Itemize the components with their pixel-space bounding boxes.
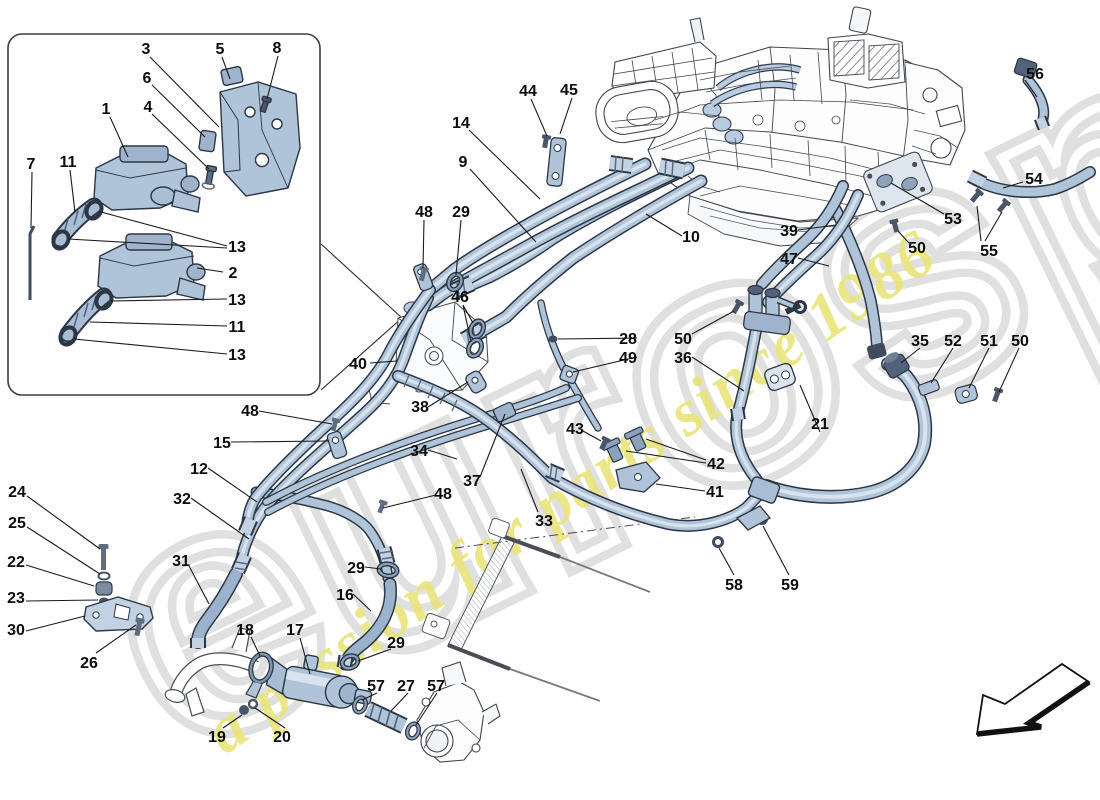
- svg-text:5: 5: [216, 41, 225, 58]
- svg-text:29: 29: [452, 204, 470, 221]
- svg-text:40: 40: [349, 356, 367, 373]
- svg-text:57: 57: [367, 678, 385, 695]
- svg-text:44: 44: [519, 83, 537, 100]
- svg-text:26: 26: [80, 655, 98, 672]
- svg-text:29: 29: [387, 635, 405, 652]
- svg-text:39: 39: [780, 223, 798, 240]
- svg-text:17: 17: [286, 622, 304, 639]
- svg-text:38: 38: [411, 399, 429, 416]
- svg-text:12: 12: [190, 461, 208, 478]
- svg-text:34: 34: [410, 443, 428, 460]
- svg-text:50: 50: [908, 240, 926, 257]
- svg-text:35: 35: [911, 333, 929, 350]
- svg-text:43: 43: [566, 421, 584, 438]
- svg-text:24: 24: [8, 484, 26, 501]
- svg-text:3: 3: [142, 41, 151, 58]
- svg-text:13: 13: [228, 347, 246, 364]
- svg-text:25: 25: [8, 515, 26, 532]
- svg-text:47: 47: [780, 251, 798, 268]
- svg-text:33: 33: [535, 513, 553, 530]
- svg-text:27: 27: [397, 678, 415, 695]
- svg-text:22: 22: [7, 554, 25, 571]
- svg-text:56: 56: [1026, 66, 1044, 83]
- svg-text:45: 45: [560, 82, 578, 99]
- svg-text:6: 6: [143, 70, 152, 87]
- svg-text:51: 51: [980, 333, 998, 350]
- svg-text:49: 49: [619, 350, 637, 367]
- svg-text:20: 20: [273, 729, 291, 746]
- svg-text:29: 29: [347, 560, 365, 577]
- svg-text:13: 13: [228, 239, 246, 256]
- svg-text:23: 23: [7, 590, 25, 607]
- svg-text:32: 32: [173, 491, 191, 508]
- svg-text:48: 48: [241, 403, 259, 420]
- svg-text:36: 36: [674, 350, 692, 367]
- svg-text:42: 42: [707, 456, 725, 473]
- svg-text:54: 54: [1025, 171, 1043, 188]
- svg-text:53: 53: [944, 211, 962, 228]
- svg-text:7: 7: [27, 156, 36, 173]
- svg-text:59: 59: [781, 577, 799, 594]
- svg-text:21: 21: [811, 416, 829, 433]
- svg-text:52: 52: [944, 333, 962, 350]
- svg-text:46: 46: [451, 289, 469, 306]
- svg-text:55: 55: [980, 243, 998, 260]
- svg-text:50: 50: [1011, 333, 1029, 350]
- svg-text:30: 30: [7, 622, 25, 639]
- svg-text:18: 18: [236, 622, 254, 639]
- svg-text:48: 48: [415, 204, 433, 221]
- svg-text:19: 19: [208, 729, 226, 746]
- svg-text:9: 9: [459, 154, 468, 171]
- svg-text:41: 41: [706, 484, 724, 501]
- svg-text:2: 2: [229, 265, 238, 282]
- svg-text:14: 14: [452, 115, 470, 132]
- svg-text:57: 57: [427, 678, 445, 695]
- svg-text:37: 37: [463, 473, 481, 490]
- svg-text:58: 58: [725, 577, 743, 594]
- svg-text:16: 16: [336, 587, 354, 604]
- svg-text:50: 50: [674, 331, 692, 348]
- svg-text:28: 28: [619, 331, 637, 348]
- svg-text:4: 4: [144, 99, 153, 116]
- svg-text:13: 13: [228, 292, 246, 309]
- svg-text:1: 1: [102, 101, 111, 118]
- svg-text:8: 8: [273, 40, 282, 57]
- svg-text:11: 11: [229, 319, 246, 336]
- svg-text:15: 15: [213, 435, 231, 452]
- svg-text:10: 10: [682, 229, 700, 246]
- svg-text:48: 48: [434, 486, 452, 503]
- svg-text:31: 31: [172, 553, 190, 570]
- svg-text:11: 11: [60, 154, 77, 171]
